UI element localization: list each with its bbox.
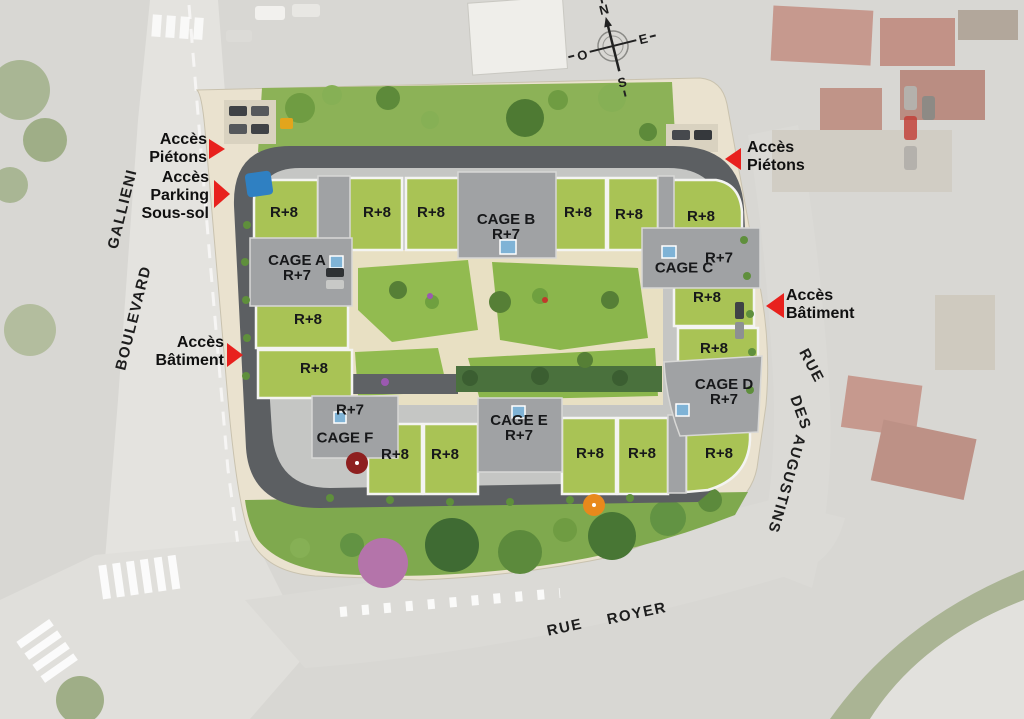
roof-label-r8: R+8 bbox=[270, 205, 298, 221]
cage-e-label: CAGE E R+7 bbox=[490, 413, 548, 443]
cage-d-label: CAGE D R+7 bbox=[695, 377, 753, 407]
north-lawn bbox=[258, 82, 676, 152]
cage-f-label: CAGE F bbox=[317, 431, 374, 446]
cage-f-level-label: R+7 bbox=[336, 403, 364, 418]
roof-label-r8: R+8 bbox=[576, 446, 604, 462]
cage-b-label: CAGE B R+7 bbox=[477, 212, 535, 242]
access-label-parking-left: Accès Parking Sous-sol bbox=[141, 169, 209, 223]
access-label-batiment-right: Accès Bâtiment bbox=[786, 287, 854, 323]
cage-a-label: CAGE A R+7 bbox=[268, 253, 326, 283]
roof-label-r8: R+8 bbox=[564, 205, 592, 221]
courtyard bbox=[348, 250, 663, 405]
plan-graphics: N E S O bbox=[0, 0, 1024, 719]
roof-label-r8: R+8 bbox=[700, 341, 728, 357]
access-label-pietons-left: Accès Piétons bbox=[149, 131, 207, 167]
yellow-vehicle bbox=[280, 118, 293, 129]
roof-label-r8: R+8 bbox=[693, 290, 721, 306]
cage-c-level-label: R+7 bbox=[705, 251, 733, 266]
roof-label-r8: R+8 bbox=[417, 205, 445, 221]
roof-label-r8: R+8 bbox=[294, 312, 322, 328]
access-label-batiment-left: Accès Bâtiment bbox=[156, 334, 224, 370]
roof-label-r8: R+8 bbox=[381, 447, 409, 463]
roof-label-r8: R+8 bbox=[363, 205, 391, 221]
roof-label-r8: R+8 bbox=[705, 446, 733, 462]
pink-tree bbox=[358, 538, 408, 588]
masterplan-image: N E S O BOULEVARD GALLIENI RUE DES AUGUS… bbox=[0, 0, 1024, 719]
roof-label-r8: R+8 bbox=[687, 209, 715, 225]
roof-label-r8: R+8 bbox=[300, 361, 328, 377]
access-label-pietons-right: Accès Piétons bbox=[747, 139, 805, 175]
roof-label-r8: R+8 bbox=[431, 447, 459, 463]
blue-canopy bbox=[244, 170, 273, 197]
roof-label-r8: R+8 bbox=[628, 446, 656, 462]
roof-label-r8: R+8 bbox=[615, 207, 643, 223]
